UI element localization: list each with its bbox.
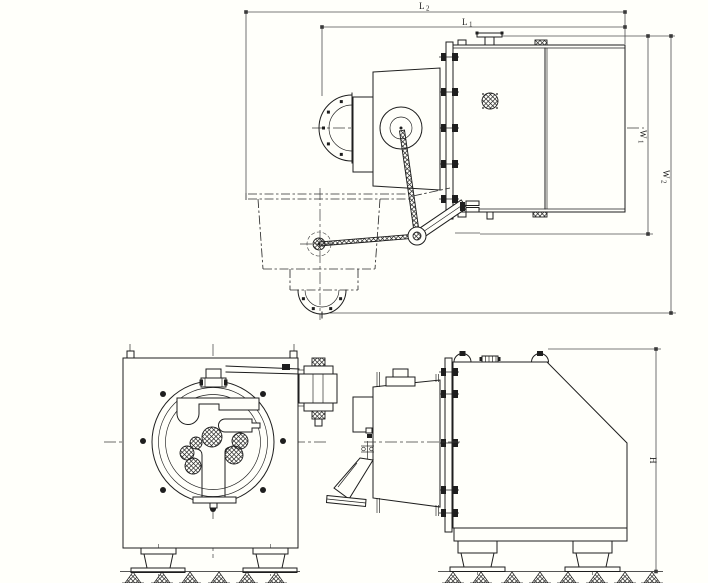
dim-label-h: H <box>648 457 658 464</box>
side-ground-symbols <box>438 572 663 583</box>
inspection-knob <box>482 93 498 109</box>
housing-lug <box>533 212 547 217</box>
side-housing <box>453 362 627 528</box>
front-lug <box>127 351 134 358</box>
cylinder-bracket <box>466 201 479 206</box>
hopper-phantom <box>246 188 450 320</box>
lifting-lugs <box>454 351 549 362</box>
handwheel <box>225 446 243 464</box>
dim-label-w1: W1 <box>637 130 649 144</box>
side-view: H <box>327 347 664 583</box>
front-view <box>104 344 337 583</box>
handwheel <box>185 458 201 474</box>
front-ground-symbols <box>120 572 300 583</box>
front-actuator <box>298 358 337 426</box>
vent-fitting <box>480 356 501 362</box>
discharge-chute <box>327 441 375 507</box>
top-nozzle <box>476 32 504 46</box>
tilt-link-rod <box>319 234 417 246</box>
side-base <box>450 528 627 575</box>
side-motor-block <box>353 397 373 432</box>
front-lug <box>290 351 297 358</box>
drive-housing-plan <box>453 32 625 220</box>
dim-label-l2: L2 <box>419 1 430 13</box>
dim-label-w2: W2 <box>660 170 672 184</box>
housing-lug <box>458 40 466 45</box>
housing-lug <box>535 40 547 45</box>
handwheel <box>190 437 202 449</box>
top-view: L2 L1 W1 W2 <box>244 1 676 320</box>
hopper-outlet-flange <box>298 290 346 318</box>
drawing-canvas: L2 L1 W1 W2 <box>0 0 708 583</box>
engineering-drawing: L2 L1 W1 W2 <box>0 0 708 583</box>
cone-neck <box>353 97 373 172</box>
housing-lug <box>487 212 493 219</box>
handwheel <box>202 427 222 447</box>
side-cone <box>353 369 440 516</box>
